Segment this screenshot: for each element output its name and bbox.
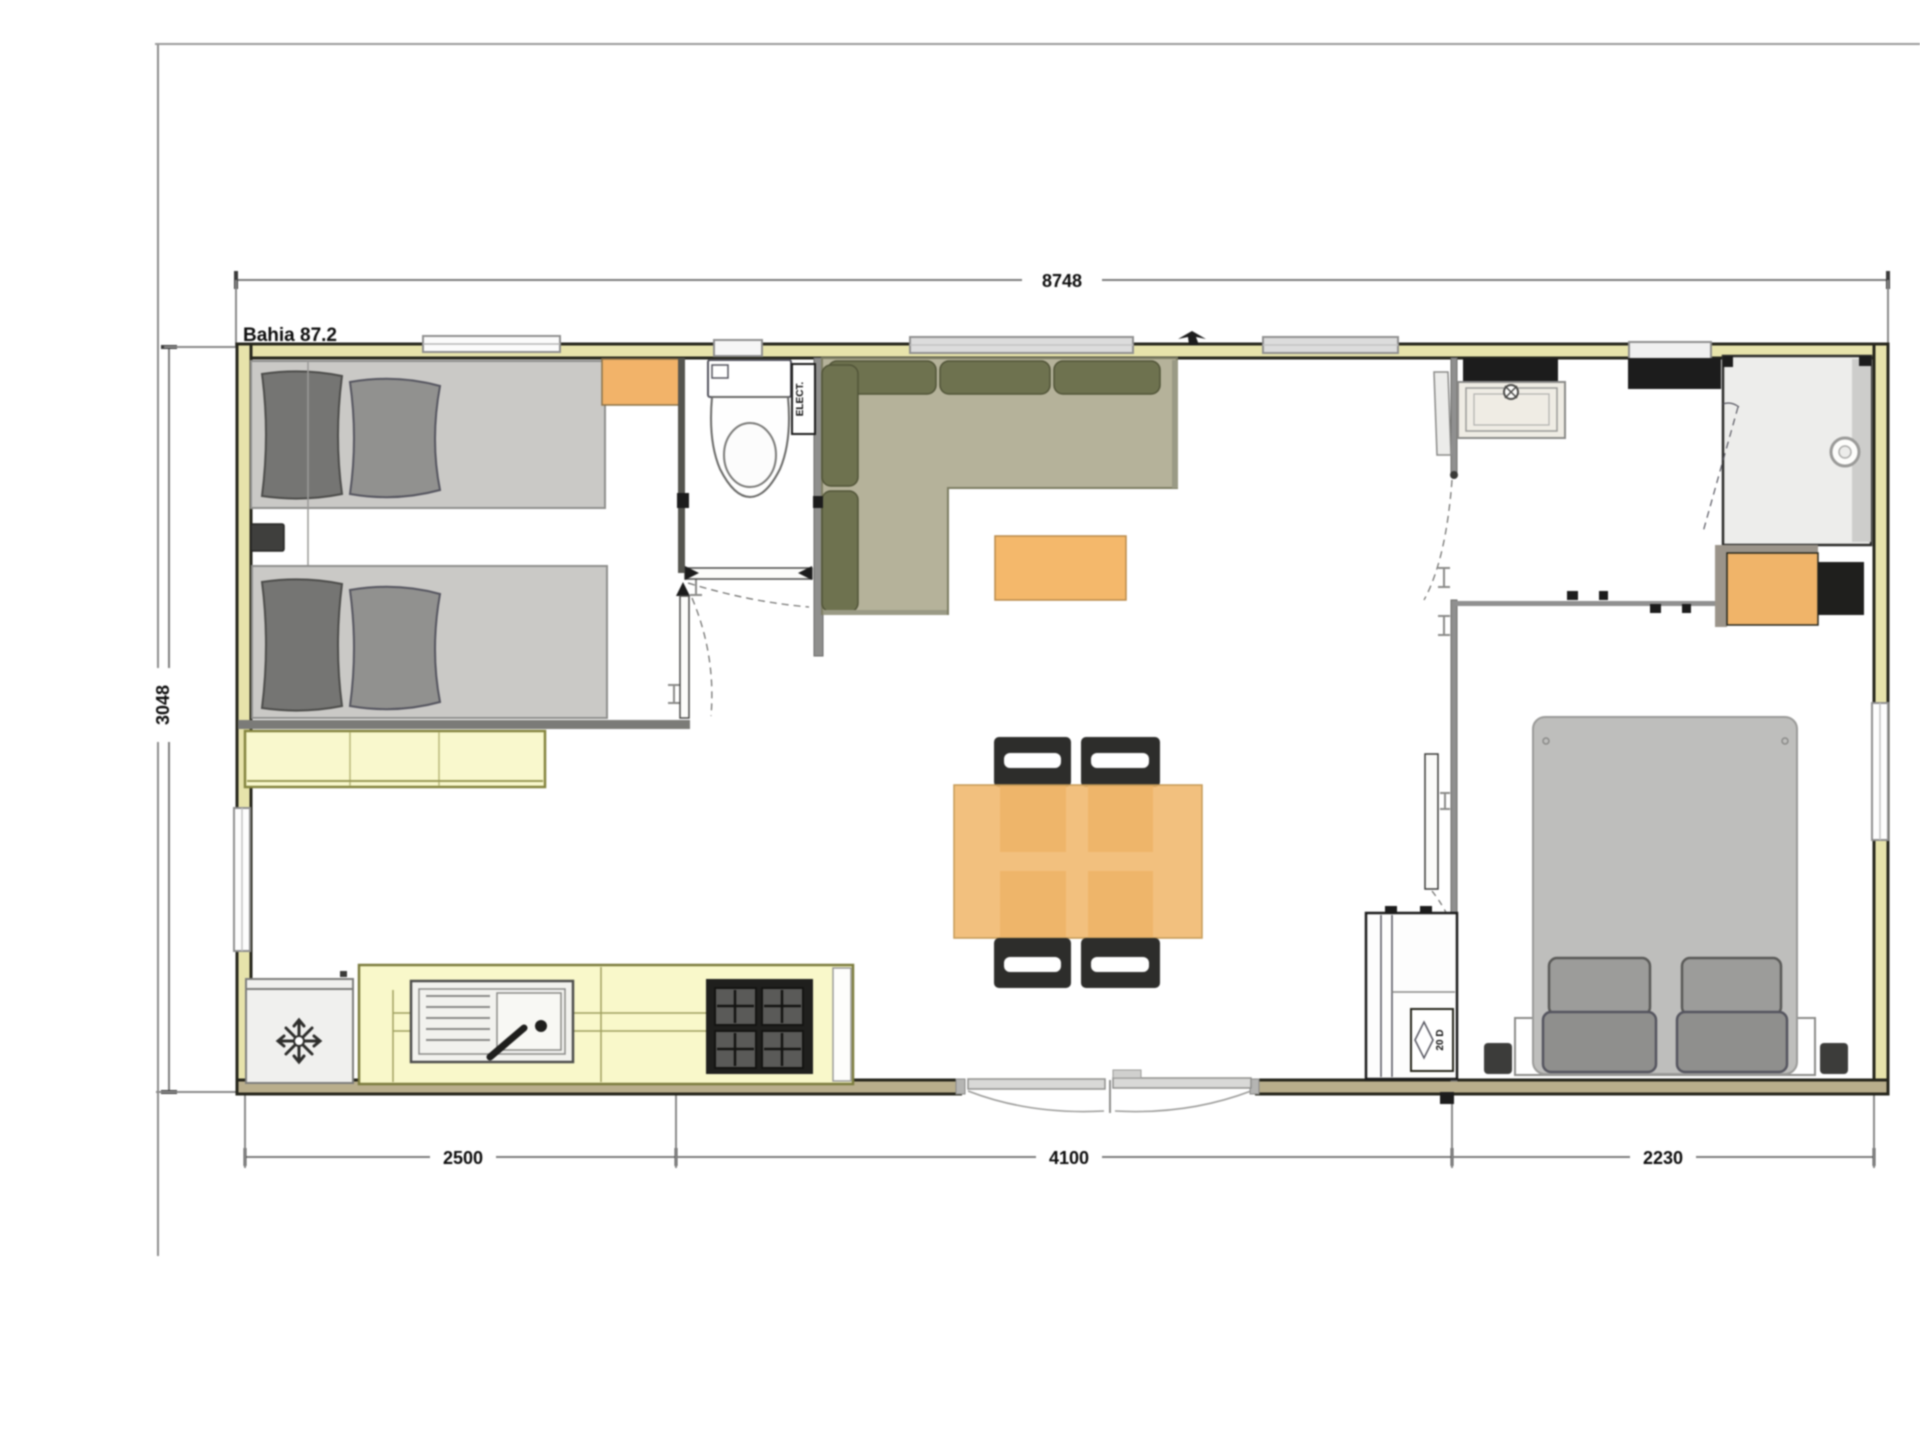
svg-text:2500: 2500 xyxy=(443,1148,483,1168)
svg-text:20 D: 20 D xyxy=(1435,1029,1446,1050)
svg-text:ELECT.: ELECT. xyxy=(795,382,806,417)
svg-text:3048: 3048 xyxy=(153,685,173,725)
svg-text:2230: 2230 xyxy=(1643,1148,1683,1168)
svg-text:4100: 4100 xyxy=(1049,1148,1089,1168)
svg-text:8748: 8748 xyxy=(1042,271,1082,291)
